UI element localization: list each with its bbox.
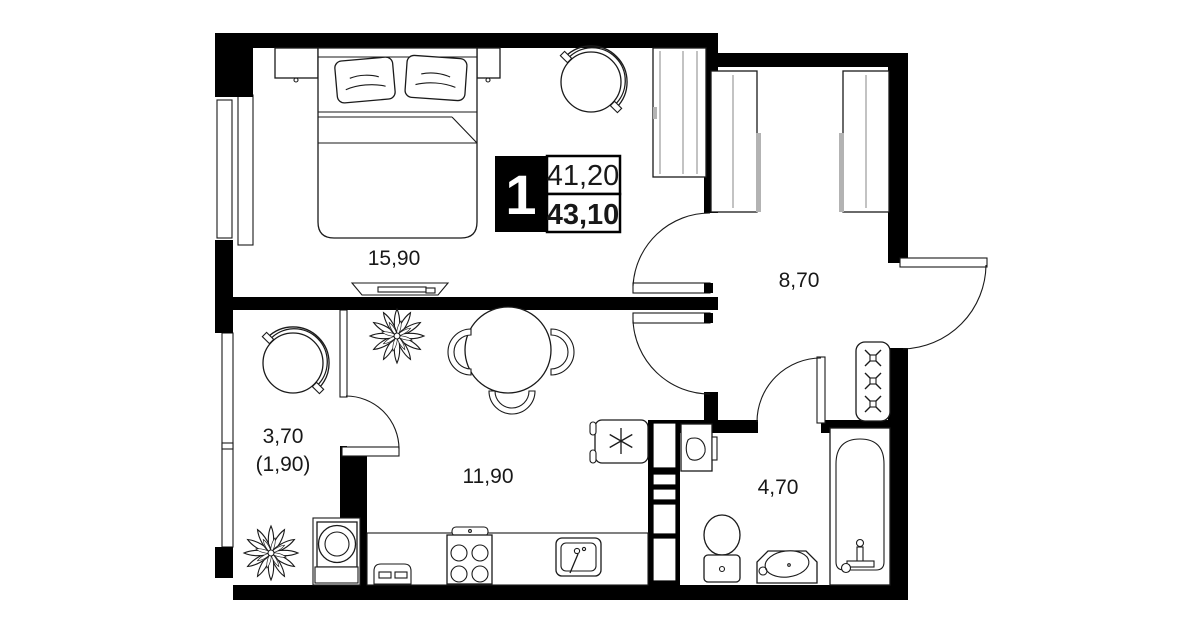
wall-right-top xyxy=(888,53,908,263)
double-bed xyxy=(318,48,477,238)
stove xyxy=(447,527,492,584)
water-heater xyxy=(681,424,717,471)
bathroom-area-label: 4,70 xyxy=(758,476,799,499)
wall-right-bottom xyxy=(888,348,908,600)
living-area-value: 41,20 xyxy=(547,160,620,192)
pillow xyxy=(334,57,395,104)
area-badge: 1 41,20 43,10 xyxy=(495,156,620,232)
kitchen-sink xyxy=(556,538,601,576)
wall-bedroom-living xyxy=(215,297,718,310)
hall-wardrobe-left xyxy=(711,71,761,212)
wall-bottom xyxy=(233,585,908,600)
wall-topleft-corner xyxy=(215,33,253,97)
nightstand-right xyxy=(477,48,500,82)
bedroom-wardrobe xyxy=(653,48,706,177)
floorplan: 15,90 8,70 11,90 4,70 3,70 (1,90) 1 41,2… xyxy=(0,0,1201,630)
wall-left-low xyxy=(215,547,233,578)
nightstand-left xyxy=(275,48,318,82)
wall-hallway-top xyxy=(711,53,908,67)
balcony-area-coefficient-label: (1,90) xyxy=(256,453,311,476)
wall-left-mid xyxy=(215,240,233,333)
pillow xyxy=(405,55,468,101)
tv-unit xyxy=(352,283,448,295)
hallway-area-label: 8,70 xyxy=(779,269,820,292)
bathtub xyxy=(830,428,890,585)
rooms-count: 1 xyxy=(505,163,536,226)
vent-shaft-icon xyxy=(856,342,890,421)
balcony-area-label: 3,70 xyxy=(263,425,304,448)
vanity-sink xyxy=(757,548,817,583)
wall-balcony-living xyxy=(340,456,367,518)
kitchen-unit-asterisk xyxy=(590,420,648,463)
total-area-value: 43,10 xyxy=(547,199,620,231)
toilet xyxy=(704,515,740,582)
hall-wardrobe-right xyxy=(839,71,889,212)
wall-top xyxy=(233,33,718,48)
bedroom-area-label: 15,90 xyxy=(368,247,421,270)
washing-machine xyxy=(313,518,360,585)
kitchen-living-area-label: 11,90 xyxy=(463,465,514,488)
kitchen-appliance xyxy=(374,564,411,584)
